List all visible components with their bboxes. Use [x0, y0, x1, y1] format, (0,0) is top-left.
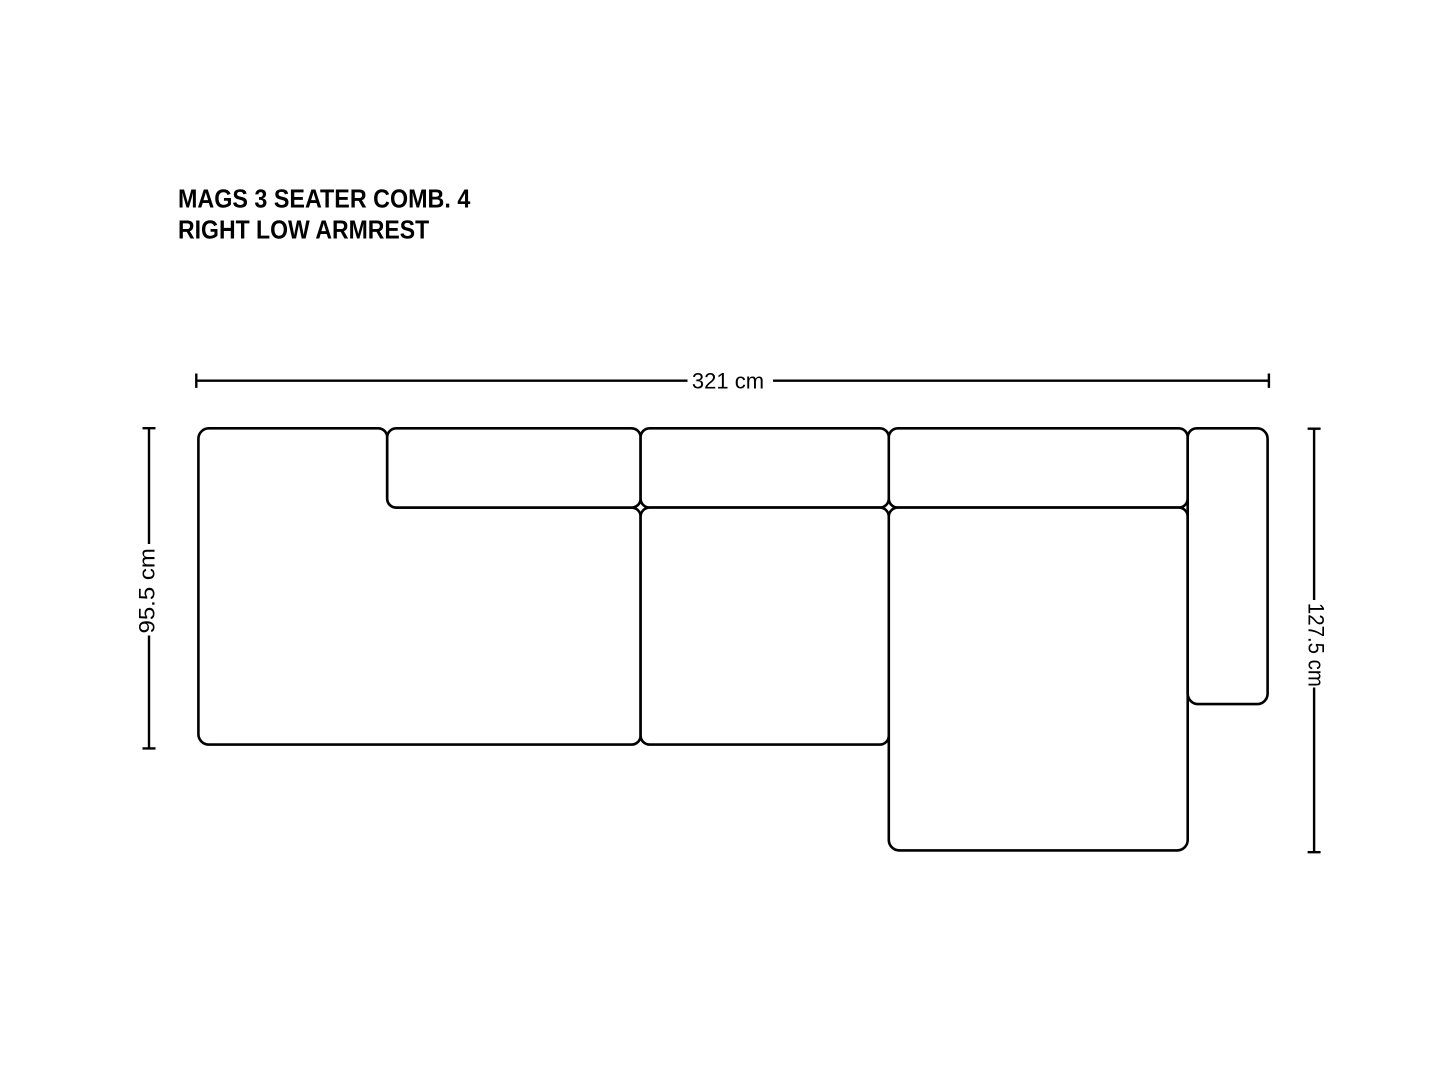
svg-text:95.5 cm: 95.5 cm — [135, 548, 160, 634]
svg-text:127.5 cm: 127.5 cm — [1304, 603, 1329, 687]
svg-text:321 cm: 321 cm — [692, 368, 764, 393]
svg-text:RIGHT LOW ARMREST: RIGHT LOW ARMREST — [178, 214, 429, 244]
svg-text:MAGS 3 SEATER COMB. 4: MAGS 3 SEATER COMB. 4 — [178, 184, 471, 214]
